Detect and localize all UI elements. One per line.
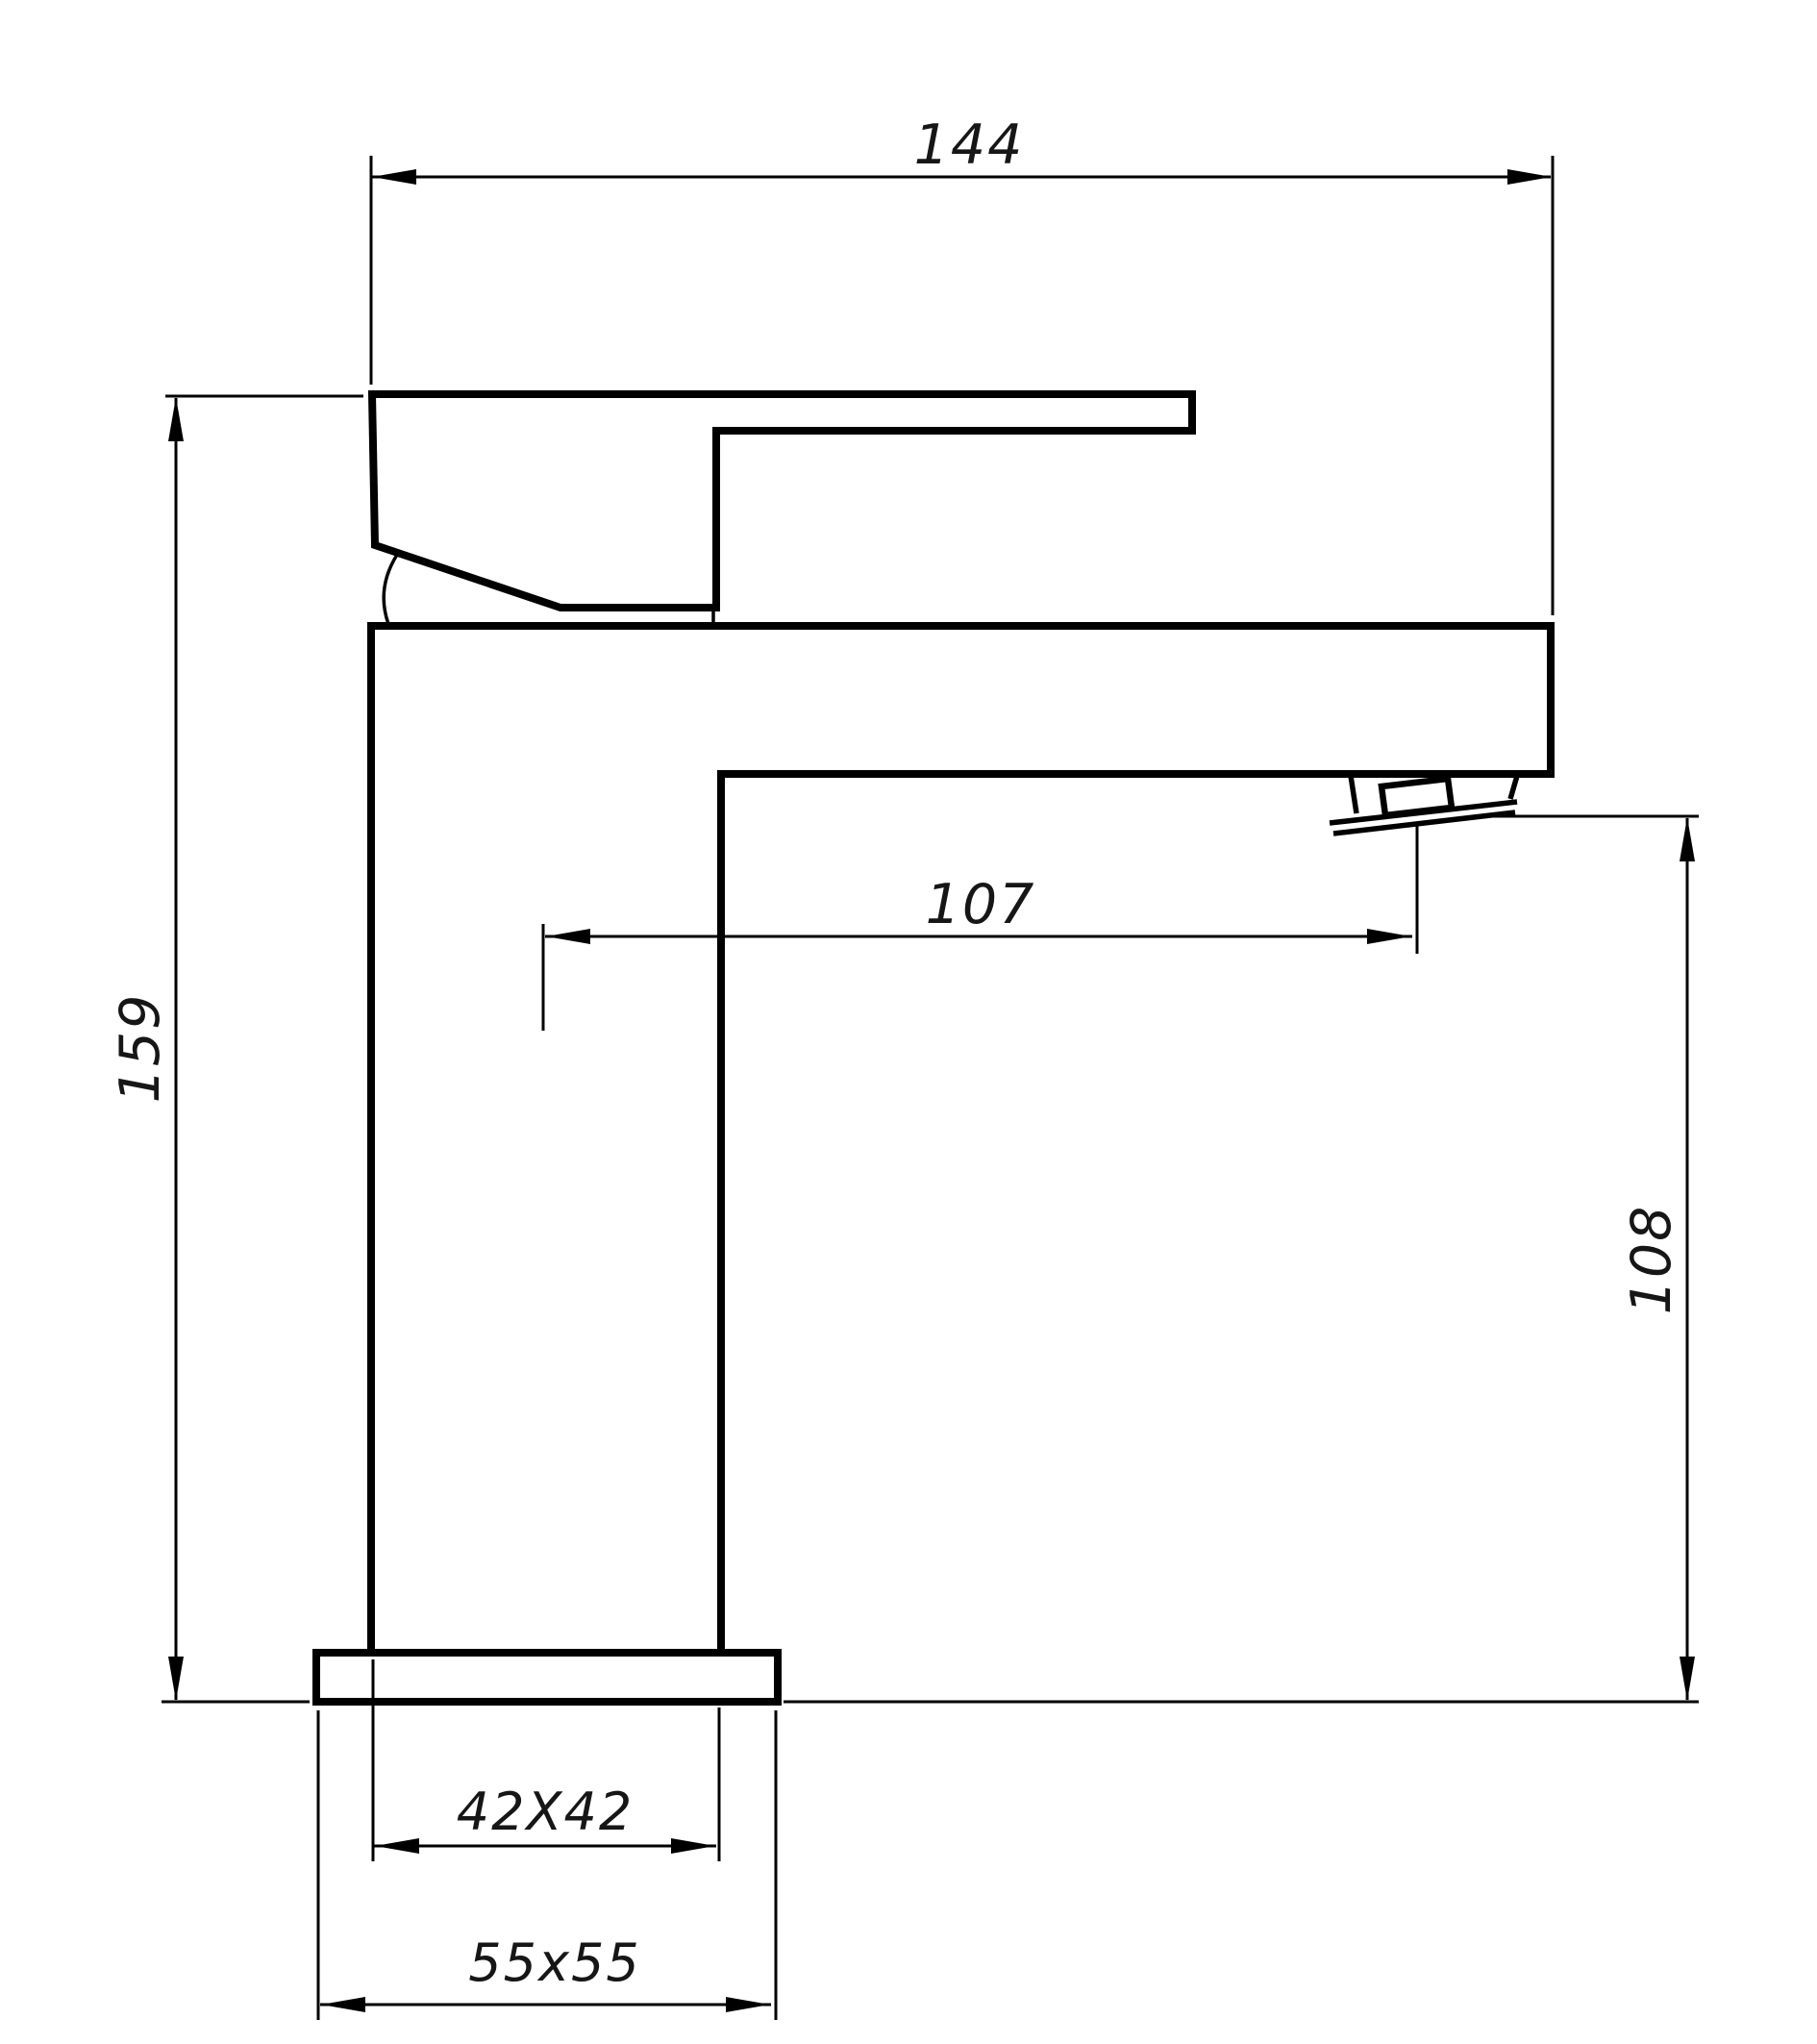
arrowhead-left-icon xyxy=(321,1997,365,2012)
arrowhead-up-icon xyxy=(168,397,184,441)
dimension-base-section: 55x55 xyxy=(318,1710,776,2020)
dimension-label-108: 108 xyxy=(1620,1205,1683,1315)
arrowhead-down-icon xyxy=(1680,1657,1695,1701)
arrowhead-up-icon xyxy=(1680,817,1695,861)
arrowhead-right-icon xyxy=(1507,169,1552,185)
dimension-spout-reach: 107 xyxy=(543,825,1417,1031)
dimension-label-159: 159 xyxy=(109,993,172,1104)
faucet-outline xyxy=(316,394,1551,1702)
aerator-insert xyxy=(1381,779,1452,815)
aerator-left-edge xyxy=(1351,776,1357,813)
aerator-right-edge xyxy=(1510,776,1517,799)
dimension-body-section: 42X42 xyxy=(373,1659,719,1861)
arrowhead-right-icon xyxy=(671,1838,715,1854)
handle-lever-outline xyxy=(372,394,1192,608)
arrowhead-right-icon xyxy=(1367,929,1411,944)
base-plate-outline xyxy=(316,1653,778,1702)
arrowhead-down-icon xyxy=(168,1657,184,1701)
handle-base-arc xyxy=(384,555,397,624)
arrowhead-right-icon xyxy=(726,1997,770,2012)
arrowhead-left-icon xyxy=(372,169,416,185)
arrowhead-left-icon xyxy=(546,929,590,944)
spout-aerator xyxy=(1330,776,1517,834)
technical-drawing-page: 144 159 107 108 xyxy=(0,0,1817,2044)
dimension-label-107: 107 xyxy=(926,873,1036,936)
dimension-outlet-height: 108 xyxy=(784,816,1699,1702)
dimension-overall-width: 144 xyxy=(371,113,1553,615)
faucet-technical-drawing: 144 159 107 108 xyxy=(0,0,1817,2044)
dimension-label-144: 144 xyxy=(914,113,1025,177)
faucet-body-outline xyxy=(371,626,1551,1653)
arrowhead-left-icon xyxy=(375,1838,419,1854)
dimension-label-42x42: 42X42 xyxy=(457,1782,634,1842)
dimension-overall-height: 159 xyxy=(109,396,363,1702)
dimension-label-55x55: 55x55 xyxy=(468,1932,640,1993)
